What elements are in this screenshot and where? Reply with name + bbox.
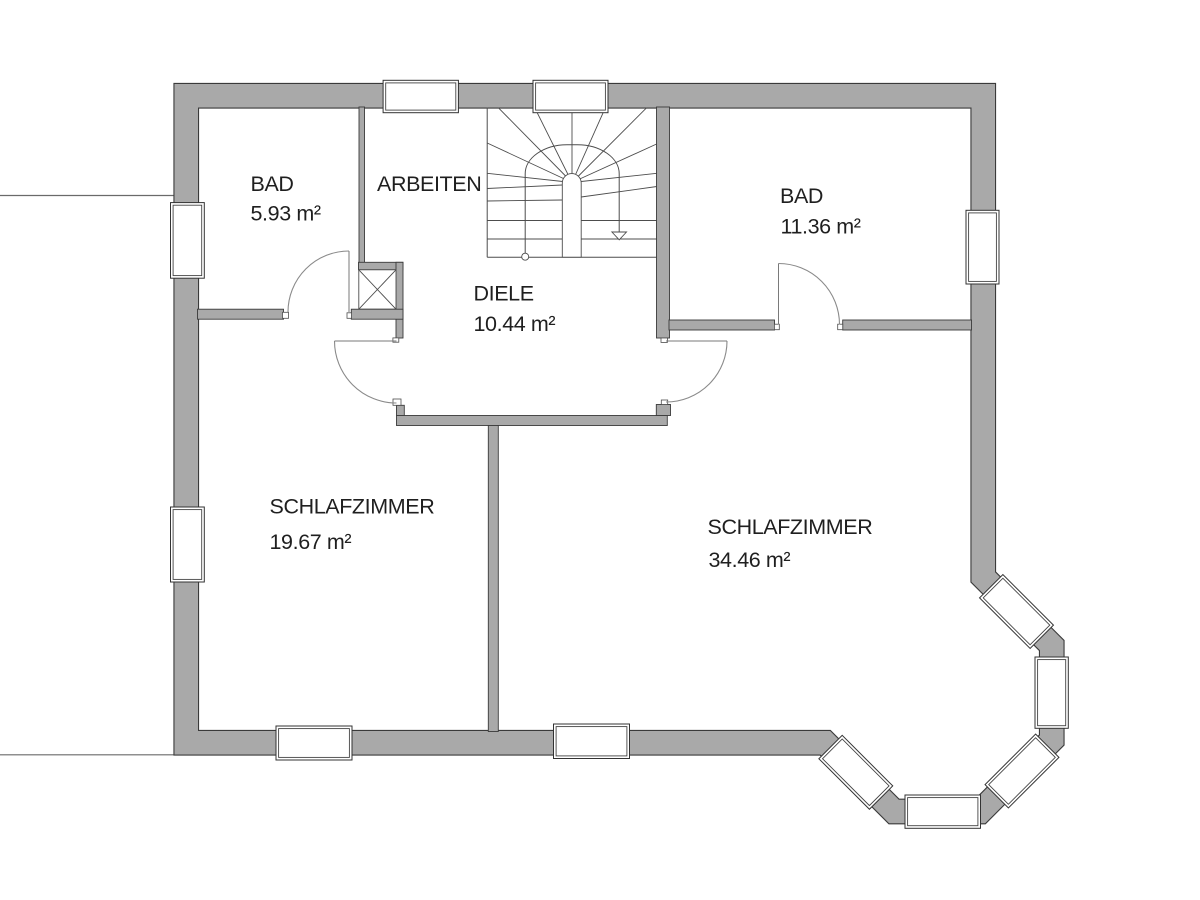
svg-text:11.36 m²: 11.36 m²	[781, 215, 861, 239]
svg-text:BAD: BAD	[780, 184, 823, 208]
svg-text:BAD: BAD	[251, 172, 294, 196]
svg-text:34.46 m²: 34.46 m²	[709, 548, 791, 572]
svg-text:SCHLAFZIMMER: SCHLAFZIMMER	[708, 515, 873, 539]
svg-text:19.67 m²: 19.67 m²	[270, 530, 352, 554]
svg-text:DIELE: DIELE	[474, 282, 534, 306]
svg-text:10.44 m²: 10.44 m²	[474, 312, 556, 336]
svg-text:ARBEITEN: ARBEITEN	[377, 172, 481, 196]
svg-text:SCHLAFZIMMER: SCHLAFZIMMER	[270, 495, 435, 519]
svg-text:5.93 m²: 5.93 m²	[251, 202, 321, 226]
